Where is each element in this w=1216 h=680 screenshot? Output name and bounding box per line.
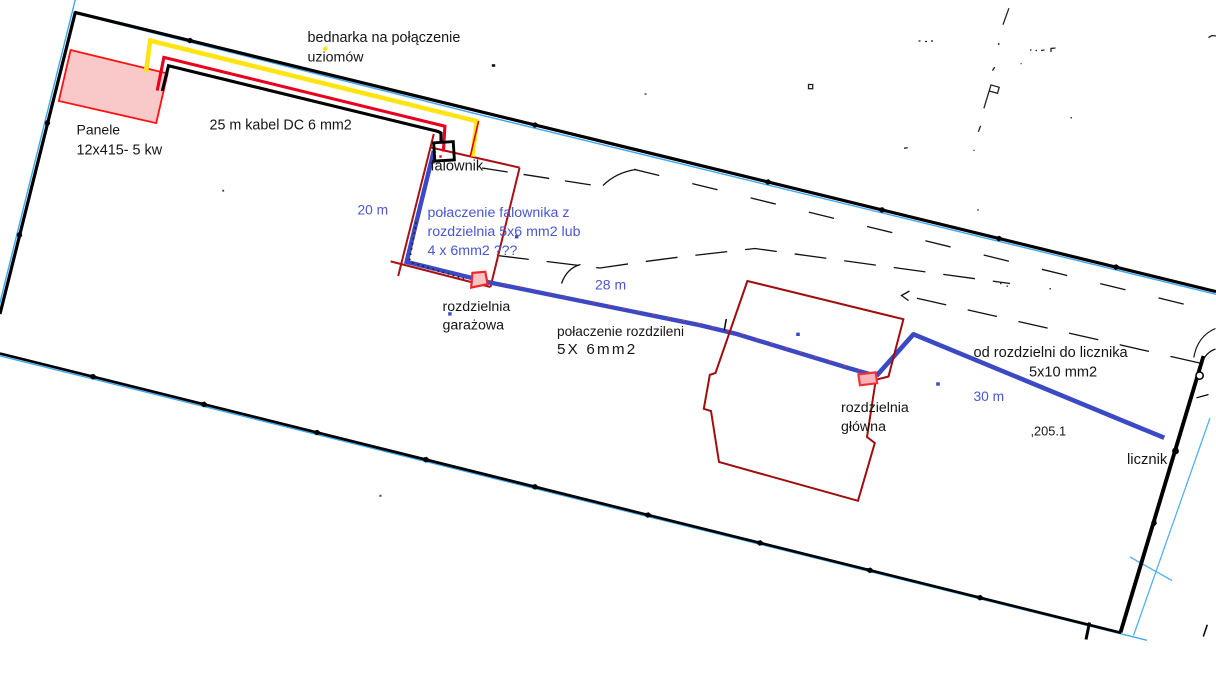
svg-text:garażowa: garażowa xyxy=(443,318,505,334)
svg-text:główna: główna xyxy=(841,419,886,435)
svg-text:rozdzielnia: rozdzielnia xyxy=(841,400,909,416)
svg-text:połaczenie rozdzileni: połaczenie rozdzileni xyxy=(557,324,684,339)
svg-text:uziomów: uziomów xyxy=(308,50,365,66)
svg-text:licznik: licznik xyxy=(1127,452,1168,468)
svg-text:rozdzielnia 5x6 mm2 lub: rozdzielnia 5x6 mm2 lub xyxy=(428,224,581,240)
svg-text:połaczenie falownika z: połaczenie falownika z xyxy=(428,205,570,221)
svg-text:4 x 6mm2 ???: 4 x 6mm2 ??? xyxy=(428,243,518,259)
svg-text:falownik: falownik xyxy=(431,159,484,175)
svg-text:30 m: 30 m xyxy=(974,389,1005,404)
svg-text:28 m: 28 m xyxy=(595,277,626,293)
svg-text:rozdzielnia: rozdzielnia xyxy=(443,299,511,315)
svg-text:20 m: 20 m xyxy=(358,203,389,218)
svg-text:25 m kabel DC 6 mm2: 25 m kabel DC 6 mm2 xyxy=(210,118,352,134)
svg-text:12x415- 5 kw: 12x415- 5 kw xyxy=(77,143,163,159)
svg-text:5x10 mm2: 5x10 mm2 xyxy=(1029,364,1097,380)
svg-text:,205.1: ,205.1 xyxy=(1031,423,1067,438)
svg-text:Panele: Panele xyxy=(77,122,121,138)
svg-text:5X 6mm2: 5X 6mm2 xyxy=(557,341,637,358)
svg-text:bednarka na połączenie: bednarka na połączenie xyxy=(308,30,461,46)
svg-text:od rozdzielni do licznika: od rozdzielni do licznika xyxy=(974,345,1129,361)
